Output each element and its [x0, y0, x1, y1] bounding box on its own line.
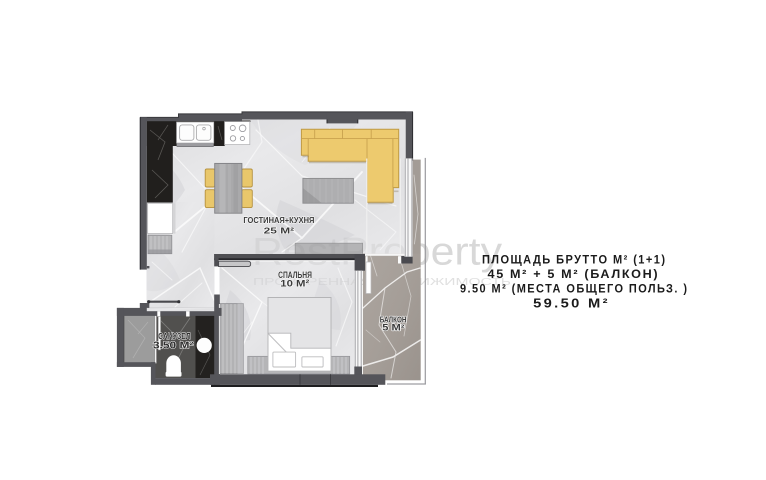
- svg-text:59.50 М²: 59.50 М²: [533, 296, 610, 310]
- svg-text:ГОСТИНАЯ+КУХНЯ: ГОСТИНАЯ+КУХНЯ: [243, 216, 314, 225]
- svg-text:ПЛОЩАДЬ БРУТТО М² (1+1): ПЛОЩАДЬ БРУТТО М² (1+1): [482, 252, 667, 266]
- svg-text:10 М²: 10 М²: [280, 278, 309, 289]
- svg-text:3.50 М²: 3.50 М²: [153, 341, 194, 352]
- svg-text:9.50 М² (МЕСТА ОБЩЕГО ПОЛЬЗ. ): 9.50 М² (МЕСТА ОБЩЕГО ПОЛЬЗ. ): [460, 282, 688, 296]
- svg-text:5 М²: 5 М²: [382, 322, 404, 332]
- svg-text:25 М²: 25 М²: [264, 226, 295, 236]
- svg-text:45 М² + 5 М² (БАЛКОН): 45 М² + 5 М² (БАЛКОН): [488, 267, 660, 281]
